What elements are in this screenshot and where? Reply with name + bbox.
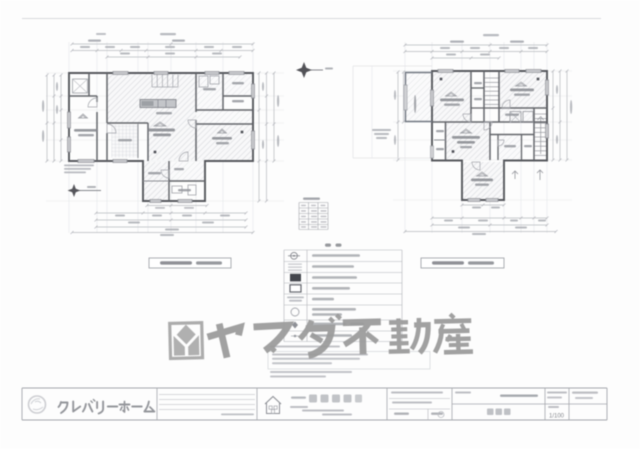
svg-text:1/100: 1/100 <box>549 414 565 420</box>
